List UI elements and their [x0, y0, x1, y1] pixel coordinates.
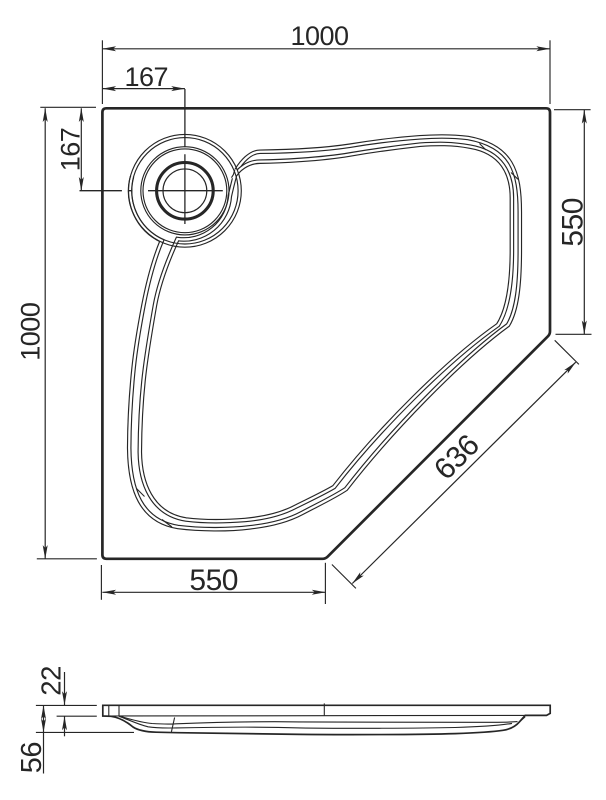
svg-text:1000: 1000 — [290, 21, 348, 51]
svg-text:22: 22 — [35, 666, 66, 696]
svg-text:56: 56 — [16, 742, 48, 773]
svg-text:167: 167 — [125, 62, 169, 92]
svg-text:1000: 1000 — [15, 303, 45, 361]
svg-text:550: 550 — [189, 564, 238, 597]
svg-text:636: 636 — [428, 429, 486, 487]
svg-text:167: 167 — [55, 128, 85, 172]
svg-text:550: 550 — [556, 198, 589, 247]
